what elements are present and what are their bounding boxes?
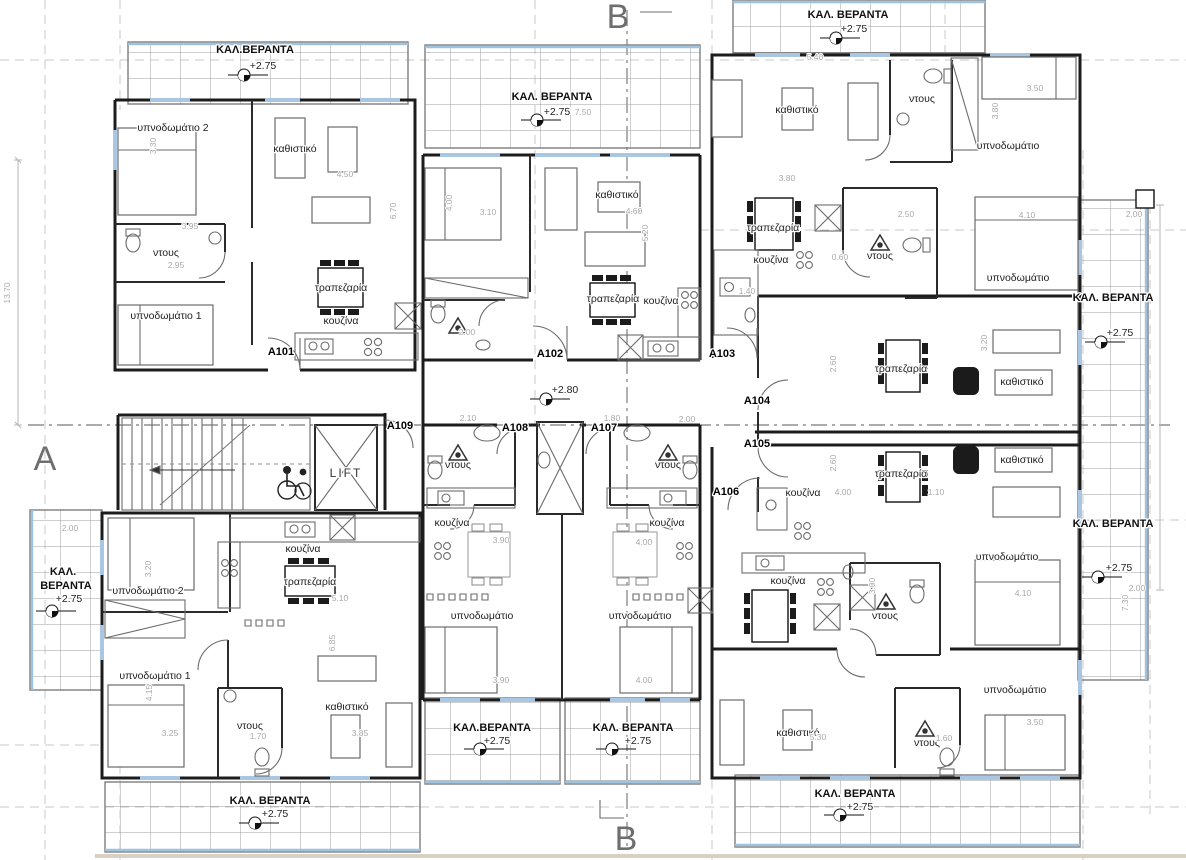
dimension-label: 3.80 bbox=[990, 102, 1000, 119]
veranda-label: ΚΑΛ. ΒΕΡΑΝΤΑ bbox=[1073, 292, 1154, 304]
dimension-label: 2.00 bbox=[1129, 583, 1146, 593]
dimension-label: 3.20 bbox=[979, 334, 989, 351]
dimension-label: 2.60 bbox=[828, 454, 838, 471]
veranda-label: ΚΑΛ. ΒΕΡΑΝΤΑ bbox=[593, 722, 674, 734]
floor-plan-page: BBAA101A102A103A104A105A106A107A108A109Κ… bbox=[0, 0, 1186, 860]
room-label: υπνοδωμάτιο bbox=[984, 684, 1047, 696]
level-label: +2.80 bbox=[552, 384, 579, 396]
veranda-label: ΚΑΛ.ΒΕΡΑΝΤΑ bbox=[216, 44, 294, 56]
room-label: καθιστικό bbox=[595, 189, 638, 201]
dimension-label: 4.10 bbox=[1015, 588, 1032, 598]
room-label: ντους bbox=[655, 459, 681, 471]
room-label: τραπεζαρία bbox=[875, 363, 928, 375]
stair-treads bbox=[122, 418, 310, 510]
room-label: υπνοδωμάτιο 2 bbox=[137, 122, 208, 134]
dimension-label: 4.00 bbox=[835, 487, 852, 497]
apartment-label: A106 bbox=[713, 486, 739, 498]
room-label: καθιστικό bbox=[325, 701, 368, 713]
dimension-label: 3.90 bbox=[493, 675, 510, 685]
dimension-label: 0.60 bbox=[832, 252, 849, 262]
veranda-bottom-right bbox=[735, 775, 1080, 847]
room-label: υπνοδωμάτιο 1 bbox=[119, 670, 190, 682]
veranda-label: ΚΑΛ. bbox=[50, 566, 76, 578]
veranda-label: ΚΑΛ. ΒΕΡΑΝΤΑ bbox=[1073, 518, 1154, 530]
section-marker-b-top: B bbox=[607, 0, 630, 36]
level-label: +2.75 bbox=[484, 735, 511, 747]
level-label: +2.75 bbox=[847, 801, 874, 813]
dimension-label: 2.00 bbox=[62, 523, 79, 533]
dimension-label: 4.00 bbox=[444, 194, 454, 211]
room-label: υπνοδωμάτιο bbox=[451, 610, 514, 622]
dimension-label: 1.10 bbox=[928, 487, 945, 497]
room-label: υπνοδωμάτιο bbox=[987, 272, 1050, 284]
apartment-label: A101 bbox=[268, 346, 294, 358]
dimension-label: 1.70 bbox=[250, 731, 267, 741]
dimension-label: 3.50 bbox=[1027, 83, 1044, 93]
room-label: κουζίνα bbox=[286, 543, 321, 555]
veranda-label: ΒΕΡΑΝΤΑ bbox=[40, 580, 92, 592]
level-label: +2.75 bbox=[56, 593, 83, 605]
room-label: κουζίνα bbox=[650, 517, 685, 529]
apartment-label: A107 bbox=[591, 422, 617, 434]
room-label: κουζίνα bbox=[771, 575, 806, 587]
door-arcs bbox=[198, 135, 960, 774]
shafts bbox=[330, 205, 875, 630]
dimension-label: 6.70 bbox=[388, 202, 398, 219]
apartment-label: A104 bbox=[744, 395, 771, 407]
dimension-label: 4.60 bbox=[626, 206, 643, 216]
apartment-label: A108 bbox=[502, 422, 528, 434]
walls bbox=[102, 55, 1080, 778]
dimension-label: 4.00 bbox=[636, 537, 653, 547]
room-label: υπνοδωμάτιο 1 bbox=[130, 310, 201, 322]
dimension-label: 4.10 bbox=[1019, 210, 1036, 220]
level-label: +2.75 bbox=[1106, 562, 1133, 574]
room-label: ντους bbox=[445, 459, 471, 471]
level-label: +2.75 bbox=[544, 106, 571, 118]
veranda-label: ΚΑΛ. ΒΕΡΑΝΤΑ bbox=[512, 91, 593, 103]
dimension-label: 3.10 bbox=[480, 207, 497, 217]
room-label: καθιστικό bbox=[1000, 376, 1043, 388]
dimension-label: 13.70 bbox=[2, 282, 12, 304]
veranda-label: ΚΑΛ.ΒΕΡΑΝΤΑ bbox=[453, 722, 531, 734]
room-label: τραπεζαρία bbox=[587, 293, 640, 305]
apartment-label: A102 bbox=[537, 348, 563, 360]
room-label: υπνοδωμάτιο bbox=[977, 140, 1040, 152]
level-label: +2.75 bbox=[625, 735, 652, 747]
dimension-label: 2.60 bbox=[828, 355, 838, 372]
room-label: κουζίνα bbox=[786, 487, 821, 499]
dimension-label: 3.95 bbox=[182, 221, 199, 231]
veranda-right bbox=[1078, 200, 1148, 680]
level-label: +2.75 bbox=[262, 808, 289, 820]
room-label: καθιστικό bbox=[273, 143, 316, 155]
dimension-label: 5.40 bbox=[807, 52, 824, 62]
bottom-edge-line bbox=[95, 854, 1186, 858]
room-label: κουζίνα bbox=[644, 295, 679, 307]
room-label: τραπεζαρία bbox=[747, 222, 800, 234]
room-label: ντους bbox=[909, 93, 935, 105]
dimension-label: 5.10 bbox=[332, 593, 349, 603]
dimension-label: 7.30 bbox=[1120, 594, 1130, 611]
stair-core bbox=[122, 418, 377, 510]
dimension-label: 1.60 bbox=[936, 733, 953, 743]
apartment-label: A103 bbox=[709, 348, 735, 360]
level-label: +2.75 bbox=[1107, 327, 1134, 339]
dimension-label: 3.90 bbox=[493, 535, 510, 545]
dimension-label: 3.25 bbox=[162, 728, 179, 738]
room-label: υπνοδωμάτιο 2 bbox=[112, 585, 183, 597]
armchair-icon bbox=[953, 446, 979, 474]
veranda-label: ΚΑΛ. ΒΕΡΑΝΤΑ bbox=[808, 9, 889, 21]
lift-label: LIFT bbox=[330, 466, 363, 480]
dimension-label: 2.50 bbox=[898, 209, 915, 219]
room-label: κουζίνα bbox=[754, 254, 789, 266]
veranda-label: ΚΑΛ. ΒΕΡΑΝΤΑ bbox=[815, 788, 896, 800]
dimension-label: 3.85 bbox=[352, 728, 369, 738]
floor-plan-svg: BBAA101A102A103A104A105A106A107A108A109Κ… bbox=[0, 0, 1186, 860]
dimension-label: 6.85 bbox=[327, 634, 337, 651]
room-label: υπνοδωμάτιο bbox=[609, 610, 672, 622]
apartment-label: A109 bbox=[387, 420, 413, 432]
dimension-label: 5.30 bbox=[810, 732, 827, 742]
room-label: καθιστικό bbox=[775, 104, 818, 116]
dimension-label: 2.10 bbox=[460, 413, 477, 423]
dimension-label: 2.00 bbox=[459, 327, 476, 337]
dimension-label: 3.80 bbox=[779, 173, 796, 183]
level-label: +2.75 bbox=[841, 23, 868, 35]
dimension-label: 3.00 bbox=[867, 577, 877, 594]
room-label: ντους bbox=[153, 247, 179, 259]
section-marker-a-left: A bbox=[34, 440, 57, 478]
dimension-label: 2.00 bbox=[1126, 209, 1143, 219]
room-label: ντους bbox=[867, 250, 893, 262]
section-marker-b-bottom: B bbox=[615, 820, 638, 858]
dimension-label: 3.30 bbox=[148, 137, 158, 154]
dimension-label: 1.40 bbox=[739, 286, 756, 296]
dimension-label: 1.80 bbox=[604, 413, 621, 423]
dimension-label: 3.50 bbox=[1027, 717, 1044, 727]
room-label: τραπεζαρία bbox=[875, 468, 928, 480]
wheelchair-icon bbox=[278, 466, 311, 499]
room-label: τραπεζαρία bbox=[315, 282, 368, 294]
dimension-label: 2.00 bbox=[679, 414, 696, 424]
dimension-label: 4.15 bbox=[144, 684, 154, 701]
room-label: υπνοδωμάτιο bbox=[976, 551, 1039, 563]
dimension-label: 5.20 bbox=[640, 224, 650, 241]
room-label: κουζίνα bbox=[324, 315, 359, 327]
dimension-label: 3.20 bbox=[143, 560, 153, 577]
room-label: τραπεζαρία bbox=[284, 576, 337, 588]
dimension-label: 7.50 bbox=[575, 107, 592, 117]
room-label: ντους bbox=[872, 610, 898, 622]
apartment-label: A105 bbox=[744, 438, 770, 450]
dimension-label: 2.95 bbox=[168, 260, 185, 270]
veranda-label: ΚΑΛ. ΒΕΡΑΝΤΑ bbox=[230, 795, 311, 807]
column bbox=[1136, 190, 1154, 208]
dimension-label: 4.50 bbox=[337, 169, 354, 179]
armchair-icon bbox=[953, 367, 979, 395]
room-label: καθιστικό bbox=[1000, 454, 1043, 466]
level-label: +2.75 bbox=[250, 60, 277, 72]
room-label: κουζίνα bbox=[435, 517, 470, 529]
dimension-label: 4.00 bbox=[636, 675, 653, 685]
